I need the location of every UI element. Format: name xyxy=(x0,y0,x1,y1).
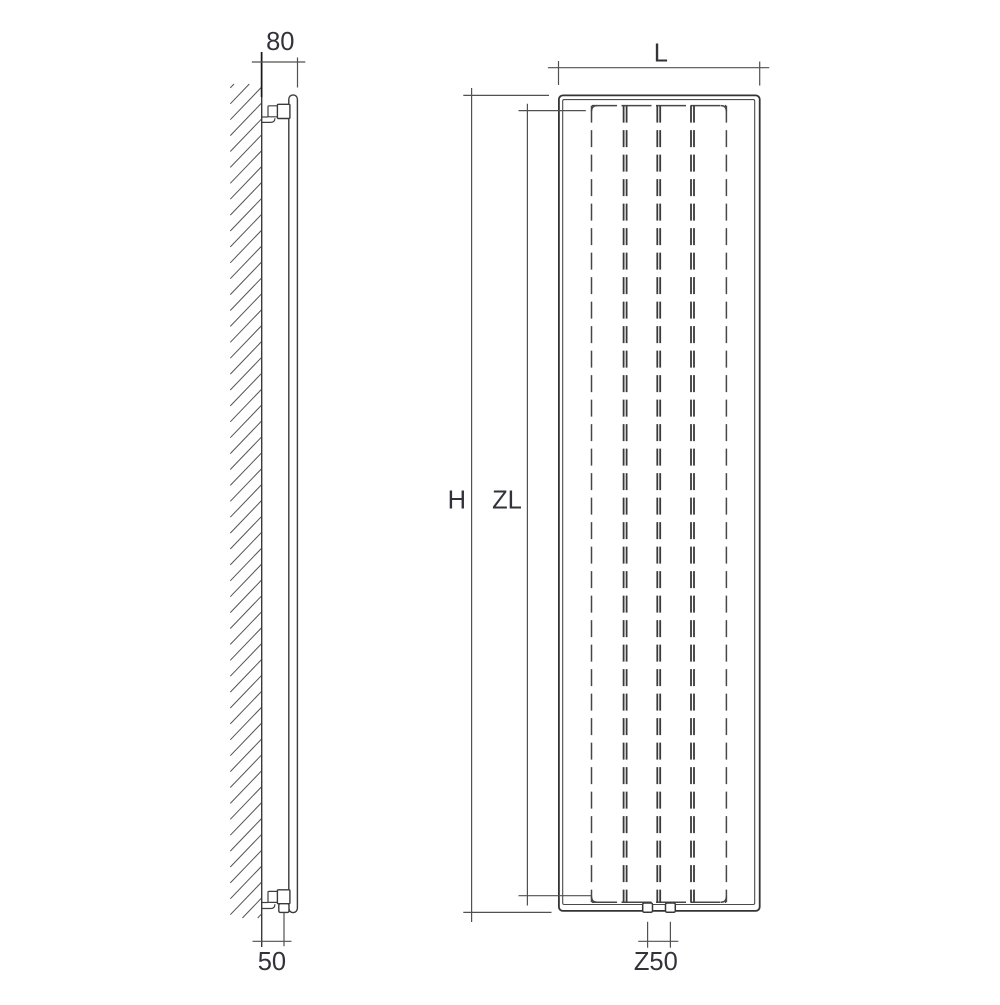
svg-text:Z50: Z50 xyxy=(634,948,678,976)
svg-text:L: L xyxy=(654,40,668,68)
svg-text:50: 50 xyxy=(258,948,286,976)
svg-text:80: 80 xyxy=(266,28,294,56)
svg-text:ZL: ZL xyxy=(492,486,522,514)
svg-text:H: H xyxy=(448,487,466,515)
